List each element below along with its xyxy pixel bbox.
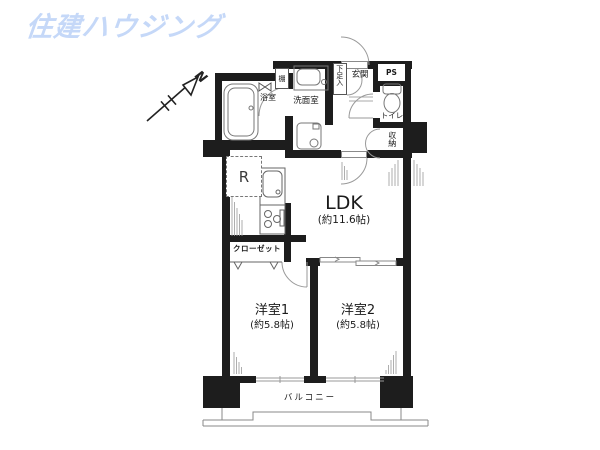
pipe-space-box: PS	[376, 62, 407, 83]
room-label-toilet: トイレ	[379, 112, 405, 120]
wall-segment	[373, 122, 407, 128]
room-label-washroom: 洗面室	[289, 97, 323, 106]
wall-segment	[310, 262, 318, 382]
wall-segment	[367, 150, 412, 158]
wall-segment	[325, 61, 333, 125]
agency-logo: 住建ハウジング	[24, 5, 224, 44]
refrigerator-label: R	[239, 168, 249, 186]
washing-machine	[297, 123, 321, 149]
ldk-door-leaf	[341, 151, 367, 158]
room-label-storage: 収納	[387, 131, 396, 147]
shelf-label: 棚	[279, 74, 286, 84]
toilet-door-arc	[349, 94, 373, 118]
wall-segment	[403, 158, 411, 382]
room-size-bedroom1: (約5.8帖)	[242, 320, 302, 331]
balcony-railing	[203, 408, 428, 426]
floor-plan-page: 住建ハウジング	[0, 0, 600, 450]
wall-segment	[284, 203, 291, 262]
room-label-bedroom2: 洋室2	[333, 304, 383, 318]
wall-segment	[285, 116, 293, 150]
refrigerator-box: R	[226, 156, 262, 197]
bathtub	[224, 84, 258, 140]
sliding-door	[320, 257, 396, 266]
pipe-space-label: PS	[386, 68, 397, 77]
compass-north-label: N	[191, 68, 209, 87]
room-label-closet: クローゼット	[230, 245, 284, 253]
entrance-step-line	[349, 97, 373, 101]
closet-bifold-doors	[230, 262, 282, 269]
wall-segment	[215, 73, 222, 150]
washbasin	[294, 66, 328, 90]
ldk-door-arc	[341, 158, 367, 184]
shelf-box: 棚	[275, 68, 289, 89]
room-label-ldk: LDK	[314, 193, 374, 214]
vent-fan-icon	[259, 83, 271, 91]
room-size-ldk: (約11.6帖)	[304, 215, 384, 227]
room-label-bathroom: 浴室	[253, 94, 283, 103]
compass-icon	[147, 77, 198, 121]
balcony-pillar-right	[380, 376, 413, 408]
balcony-pillar-left	[203, 376, 240, 408]
wall-segment	[403, 122, 427, 153]
room-label-balcony: バルコニー	[275, 394, 345, 403]
room-label-entrance: 玄関	[347, 71, 373, 80]
wall-segment	[230, 235, 306, 242]
room-label-bedroom1: 洋室1	[247, 304, 297, 318]
room-size-bedroom2: (約5.8帖)	[328, 320, 388, 331]
wall-segment	[304, 376, 326, 383]
toilet-fixture	[383, 84, 401, 113]
wall-segment	[222, 140, 293, 150]
wall-segment	[285, 150, 341, 158]
bedroom1-door-arc	[282, 262, 307, 287]
room-label-shoe-cabinet: 下足入	[335, 65, 343, 86]
wall-segment	[396, 258, 406, 266]
kitchen-unit	[260, 168, 285, 234]
